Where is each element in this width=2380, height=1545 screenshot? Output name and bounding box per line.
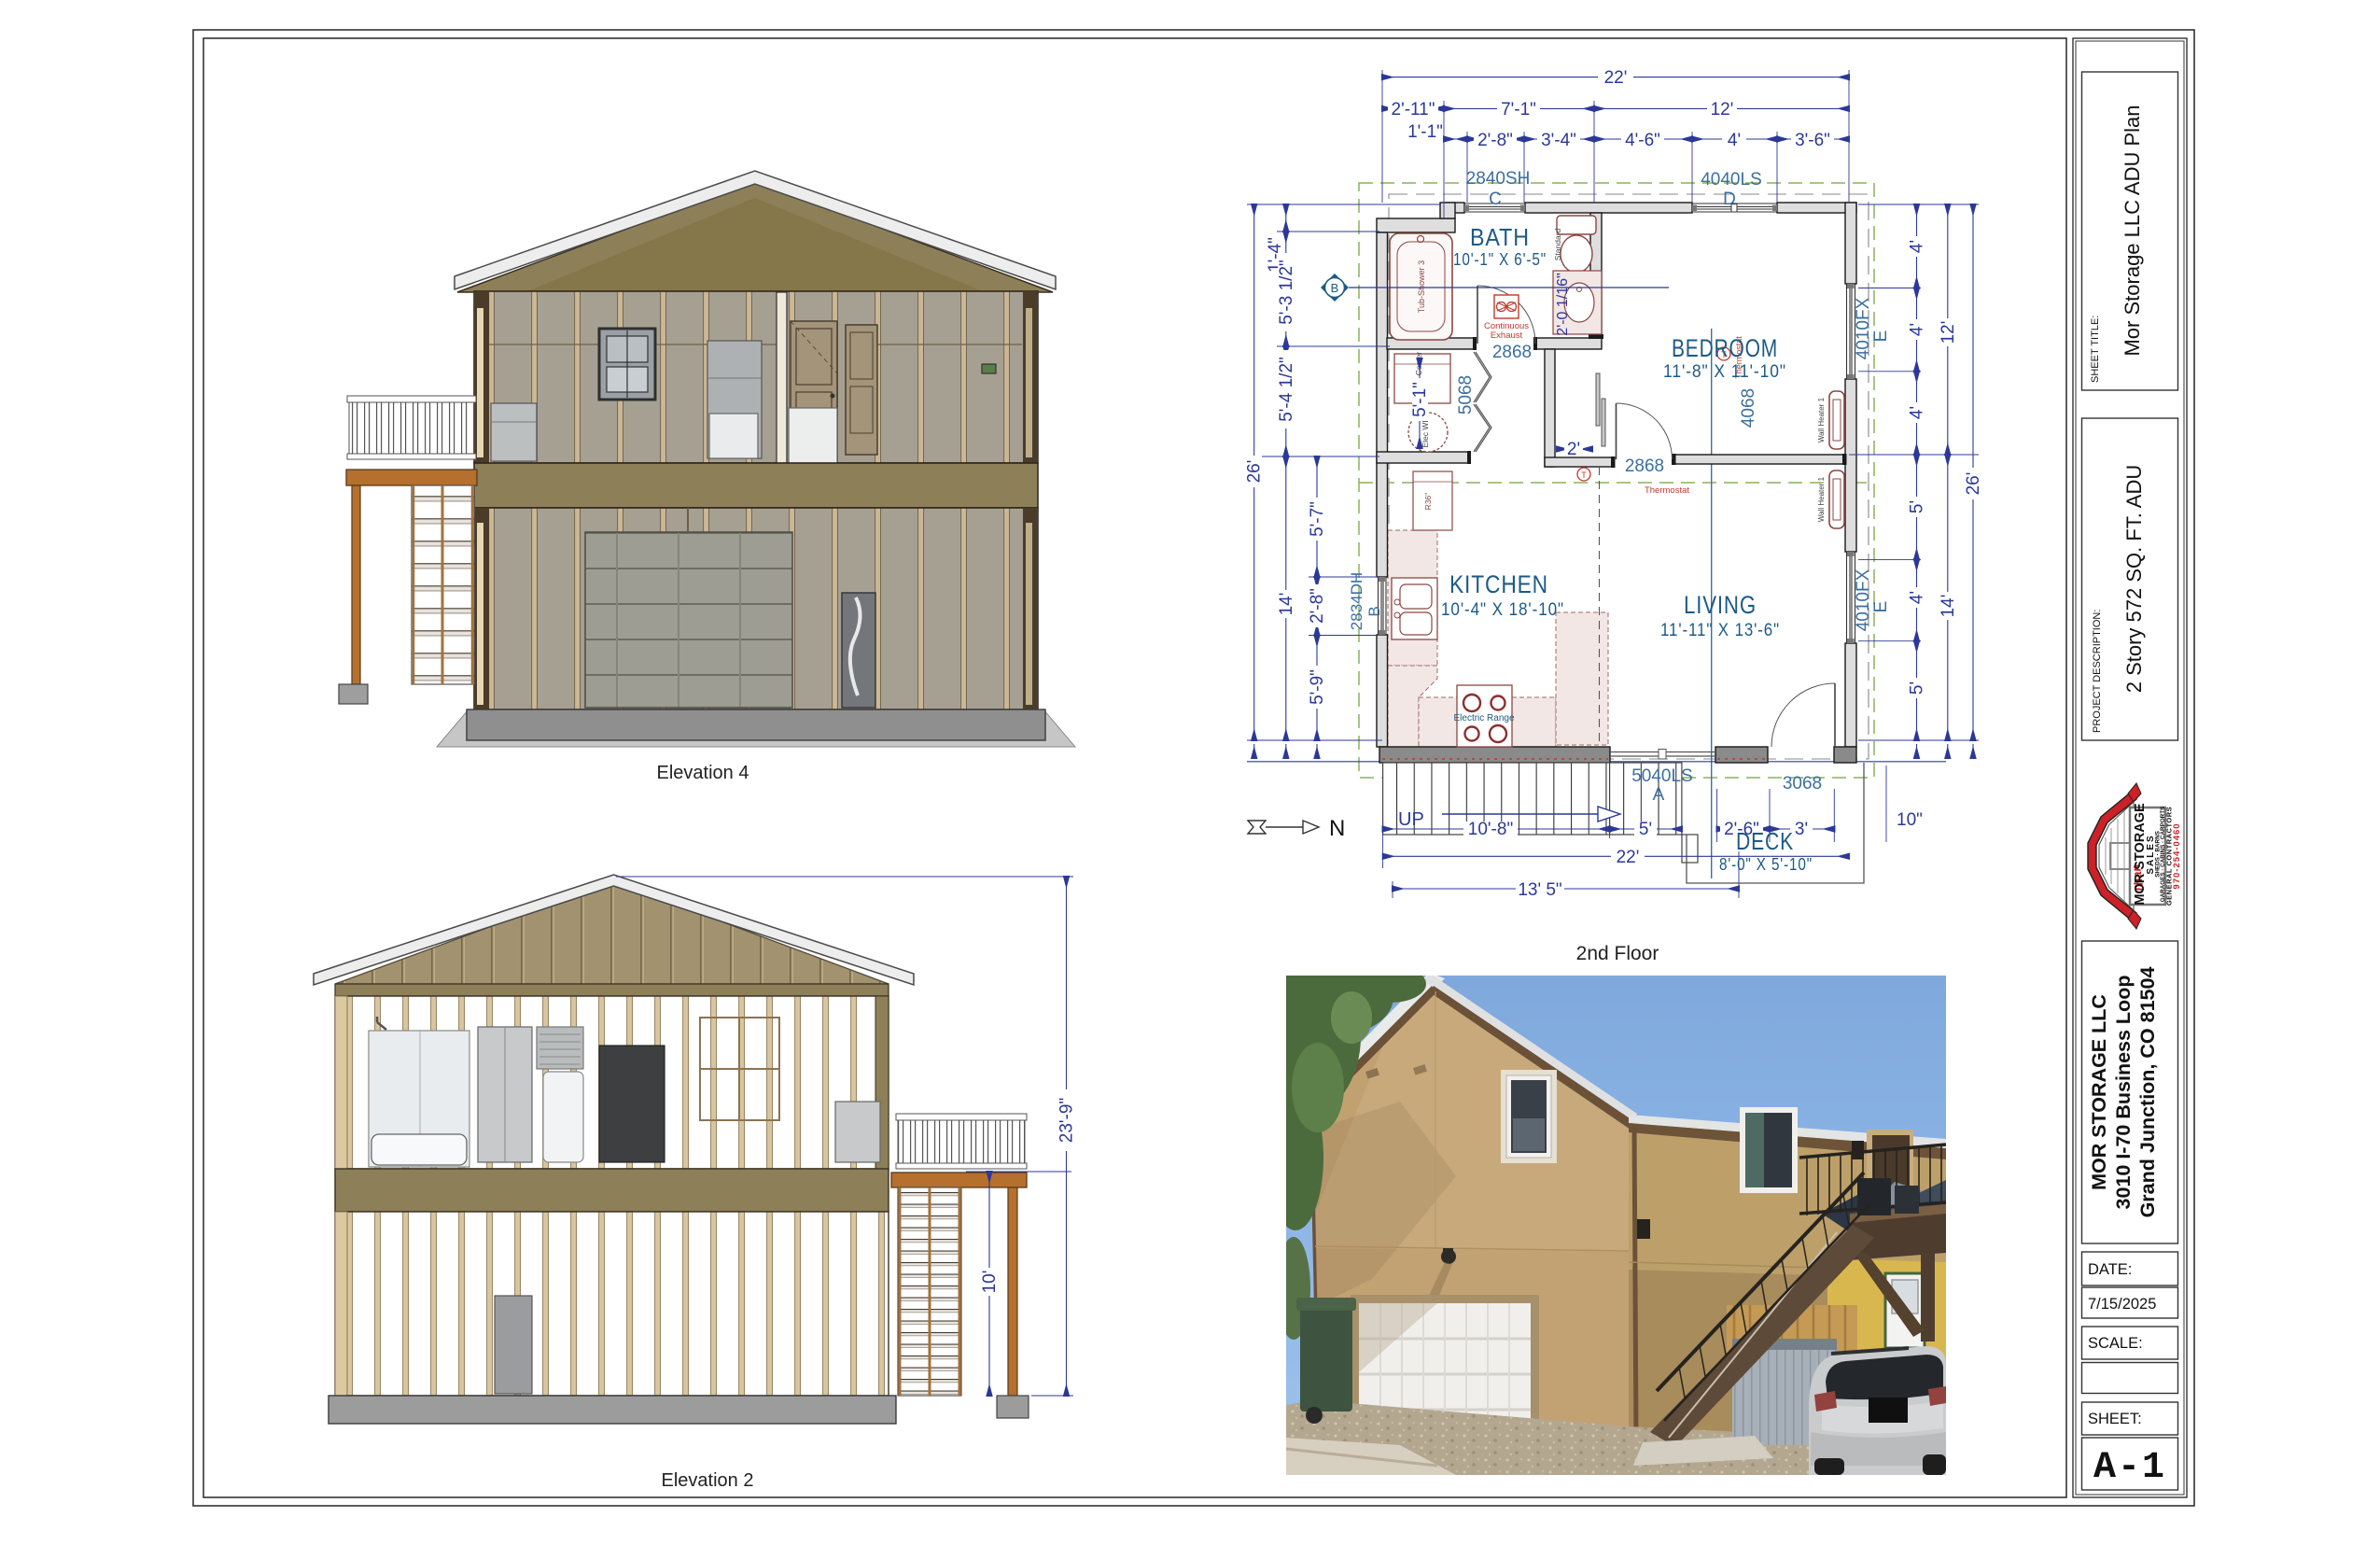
svg-text:26': 26' (1964, 472, 1983, 496)
svg-text:Elevation 4: Elevation 4 (657, 763, 749, 783)
svg-text:10'-8": 10'-8" (1468, 820, 1513, 839)
svg-text:Elevation 2: Elevation 2 (662, 1470, 754, 1491)
svg-text:SHEET TITLE:: SHEET TITLE: (2090, 316, 2101, 383)
svg-text:DATE:: DATE: (2088, 1261, 2132, 1278)
svg-text:Thermostat: Thermostat (1645, 485, 1689, 496)
svg-text:Electric Range: Electric Range (1453, 713, 1514, 723)
svg-text:BEDROOM: BEDROOM (1672, 334, 1778, 362)
svg-text:5'-9": 5'-9" (1308, 669, 1327, 705)
svg-text:14': 14' (1277, 593, 1296, 616)
svg-text:UP: UP (1398, 809, 1424, 830)
svg-text:4': 4' (1728, 131, 1741, 150)
svg-text:4040LS: 4040LS (1701, 170, 1762, 190)
svg-text:LIVING: LIVING (1684, 591, 1757, 619)
svg-text:10'-4" X 18'-10": 10'-4" X 18'-10" (1441, 600, 1564, 620)
svg-text:5': 5' (1908, 500, 1927, 513)
svg-text:11'-11" X 13'-6": 11'-11" X 13'-6" (1660, 621, 1780, 640)
svg-text:DECK: DECK (1736, 827, 1794, 855)
svg-text:2nd Floor: 2nd Floor (1576, 943, 1659, 964)
svg-text:10': 10' (980, 1271, 1000, 1294)
svg-text:E: E (1871, 601, 1891, 613)
svg-text:7'-1": 7'-1" (1501, 100, 1536, 119)
svg-text:SHEET:: SHEET: (2088, 1411, 2142, 1427)
svg-text:2'-8": 2'-8" (1477, 131, 1513, 150)
svg-text:4': 4' (1908, 323, 1927, 336)
svg-text:3068: 3068 (1783, 774, 1822, 794)
svg-text:26': 26' (1245, 460, 1265, 484)
svg-text:5'-4 1/2": 5'-4 1/2" (1277, 357, 1296, 422)
svg-text:4010FX: 4010FX (1854, 569, 1873, 631)
svg-text:2834DH: 2834DH (1348, 572, 1365, 630)
svg-text:5040LS: 5040LS (1631, 766, 1693, 786)
svg-text:2840SH: 2840SH (1466, 169, 1531, 189)
svg-text:4': 4' (1908, 240, 1927, 253)
svg-text:4': 4' (1908, 591, 1927, 604)
svg-text:SCALE:: SCALE: (2088, 1335, 2143, 1352)
svg-text:5'-3 1/2": 5'-3 1/2" (1277, 260, 1296, 325)
svg-text:22': 22' (1617, 848, 1640, 867)
svg-text:B: B (1331, 281, 1339, 295)
svg-text:970-254-0460: 970-254-0460 (2172, 822, 2182, 889)
svg-text:KITCHEN: KITCHEN (1449, 570, 1548, 598)
svg-text:3'-6": 3'-6" (1795, 131, 1830, 150)
svg-text:1'-1": 1'-1" (1407, 122, 1443, 142)
svg-text:12': 12' (1711, 100, 1734, 119)
svg-text:T: T (1581, 471, 1587, 480)
svg-text:4': 4' (1908, 406, 1927, 419)
svg-text:10": 10" (1897, 810, 1923, 830)
svg-text:2': 2' (1567, 440, 1580, 459)
svg-text:Wall Heater 1: Wall Heater 1 (1817, 476, 1826, 522)
svg-text:22': 22' (1604, 68, 1628, 88)
svg-text:Tub-Shower 3: Tub-Shower 3 (1417, 260, 1426, 313)
svg-text:5'-7": 5'-7" (1308, 501, 1327, 537)
svg-text:R36": R36" (1423, 493, 1433, 511)
svg-text:13' 5": 13' 5" (1518, 880, 1561, 900)
svg-text:Wall Heater 1: Wall Heater 1 (1817, 397, 1826, 442)
svg-text:2868: 2868 (1625, 456, 1664, 476)
svg-text:Grand Junction, CO 81504: Grand Junction, CO 81504 (2136, 967, 2159, 1218)
svg-text:3': 3' (1795, 820, 1808, 839)
svg-text:2'-11": 2'-11" (1392, 100, 1435, 119)
svg-text:B: B (1365, 606, 1383, 616)
svg-text:A-1: A-1 (2093, 1447, 2166, 1489)
svg-text:N: N (1329, 816, 1345, 841)
svg-text:4010FX: 4010FX (1854, 297, 1873, 359)
svg-text:2868: 2868 (1492, 343, 1532, 362)
svg-text:3'-4": 3'-4" (1541, 131, 1576, 150)
svg-text:A: A (1653, 785, 1665, 805)
svg-text:Elec WH: Elec WH (1421, 416, 1430, 447)
svg-text:C: C (1489, 190, 1502, 209)
svg-text:4'-6": 4'-6" (1625, 131, 1660, 150)
svg-text:12': 12' (1939, 321, 1958, 344)
svg-text:5'-1": 5'-1" (1410, 382, 1430, 417)
svg-text:23'-9": 23'-9" (1057, 1098, 1077, 1143)
svg-text:D: D (1723, 190, 1736, 209)
svg-text:5068: 5068 (1456, 375, 1476, 414)
svg-text:Standard: Standard (1553, 228, 1562, 260)
svg-text:11'-8" X 11'-10": 11'-8" X 11'-10" (1663, 362, 1786, 382)
svg-text:2'-8": 2'-8" (1308, 588, 1327, 624)
svg-text:5': 5' (1639, 820, 1652, 839)
svg-text:PROJECT DESCRIPTION:: PROJECT DESCRIPTION: (2092, 610, 2103, 733)
svg-text:4068: 4068 (1739, 388, 1758, 428)
svg-text:10'-1" X 6'-5": 10'-1" X 6'-5" (1453, 250, 1547, 269)
svg-text:8'-0" X 5'-10": 8'-0" X 5'-10" (1719, 855, 1813, 874)
svg-text:MOR STORAGE LLC: MOR STORAGE LLC (2088, 994, 2110, 1190)
svg-text:2 Story 572 SQ. FT. ADU: 2 Story 572 SQ. FT. ADU (2122, 465, 2146, 694)
svg-text:7/15/2025: 7/15/2025 (2088, 1296, 2156, 1313)
svg-text:Mor Storage LLC ADU Plan: Mor Storage LLC ADU Plan (2121, 105, 2144, 356)
svg-text:14': 14' (1939, 595, 1958, 618)
svg-text:E: E (1871, 330, 1891, 343)
svg-text:2'-0 1/16": 2'-0 1/16" (1555, 273, 1571, 335)
svg-text:3010 I-70 Business Loop: 3010 I-70 Business Loop (2112, 976, 2135, 1210)
svg-text:5': 5' (1908, 681, 1927, 695)
svg-text:BATH: BATH (1470, 223, 1530, 251)
svg-text:Exhaust: Exhaust (1491, 330, 1523, 341)
